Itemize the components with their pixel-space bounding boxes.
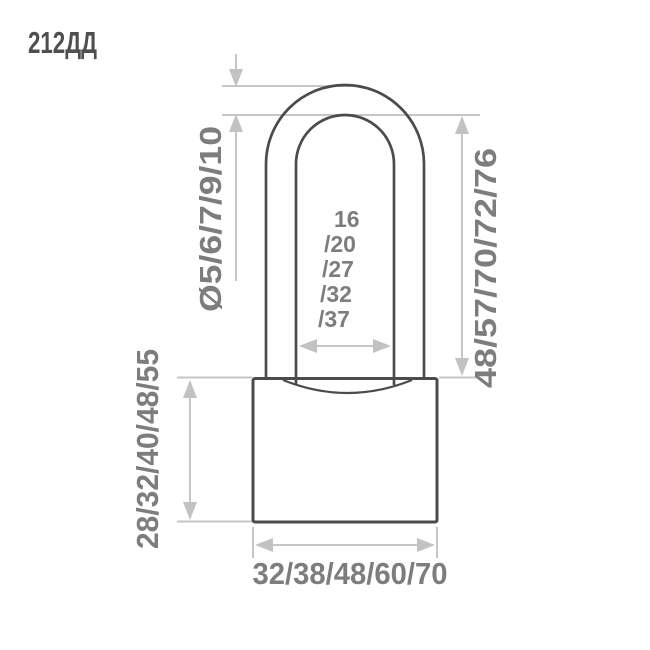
padlock-dimension-drawing: 212ДД Ø5/6/7/9/10 48/57/70/72/76 28/32/4…: [0, 0, 650, 650]
arrow-right-icon: [417, 538, 435, 552]
arrow-down-icon: [183, 502, 197, 520]
arrow-right-icon: [373, 339, 391, 353]
shackle-inner-width-row: /32: [320, 281, 352, 307]
arrow-up-icon: [183, 380, 197, 398]
shackle-inner-width-row: 16: [334, 206, 360, 232]
padlock-body-outline: [253, 379, 437, 523]
body-height-label: 28/32/40/48/55: [130, 349, 165, 549]
body-width-label: 32/38/48/60/70: [253, 556, 448, 591]
shackle-height-label: 48/57/70/72/76: [468, 148, 503, 388]
arrow-left-icon: [299, 339, 317, 353]
shackle-inner-width-row: /20: [324, 231, 356, 257]
shackle-inner-width-stack: 16 /20 /27 /32 /37: [318, 206, 360, 332]
arrow-down-icon: [229, 69, 243, 87]
arrow-up-icon: [229, 114, 243, 132]
arrow-left-icon: [255, 538, 273, 552]
shackle-inner-width-row: /27: [322, 256, 354, 282]
drawing-canvas: 212ДД Ø5/6/7/9/10 48/57/70/72/76 28/32/4…: [0, 0, 650, 650]
shackle-inner-width-row: /37: [318, 306, 350, 332]
arrow-up-icon: [455, 116, 469, 134]
arrow-down-icon: [455, 358, 469, 376]
shackle-diameter-label: Ø5/6/7/9/10: [193, 126, 228, 312]
drawing-title: 212ДД: [28, 25, 97, 60]
